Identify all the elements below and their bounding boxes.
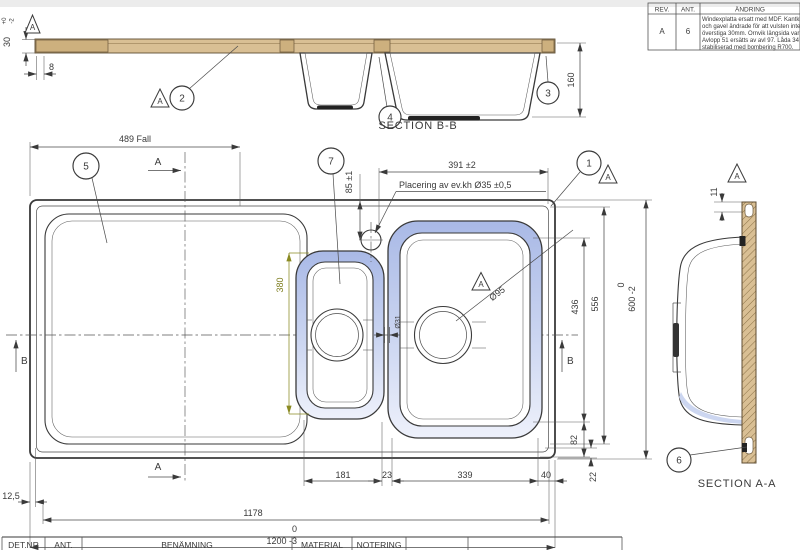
section-aa-label: SECTION A-A xyxy=(698,478,776,490)
svg-text:A: A xyxy=(155,462,162,473)
andring-line-1: Windexplatta ersatt med MDF. Kantklipp, … xyxy=(702,17,800,23)
svg-text:8: 8 xyxy=(49,62,54,72)
dim-339: 339 xyxy=(457,470,472,480)
large-bowl-plan xyxy=(388,221,542,438)
titleblock-benamning: BENÄMNING xyxy=(161,540,212,550)
svg-text:22: 22 xyxy=(588,472,598,482)
svg-text:1: 1 xyxy=(586,159,592,170)
svg-text:5: 5 xyxy=(83,162,89,173)
drawing-canvas: REV. ANT. ÄNDRING A 6 Windexplatta ersat… xyxy=(0,0,800,550)
small-bowl-plan xyxy=(296,251,384,419)
andring-line-5: stabiliserad med bombering R700. xyxy=(702,45,794,51)
titleblock-material: MATERIAL xyxy=(301,540,343,550)
andring-col-header: ÄNDRING xyxy=(735,6,765,14)
dim-23: 23 xyxy=(382,470,392,480)
dim-30-tol-hi: +0 xyxy=(2,17,8,25)
svg-text:3: 3 xyxy=(545,89,551,100)
titleblock-ant: ANT. xyxy=(54,540,72,550)
svg-text:B: B xyxy=(567,356,574,367)
andring-line-2: och gavel ändrade för att vulsten inte s… xyxy=(702,24,800,30)
svg-text:6: 6 xyxy=(676,456,682,467)
rev-cell: A xyxy=(659,27,665,36)
svg-text:82: 82 xyxy=(569,435,579,445)
rev-col-header: REV. xyxy=(655,7,670,14)
svg-text:380: 380 xyxy=(275,277,285,292)
small-bowl-section xyxy=(300,53,372,110)
svg-text:391 ±2: 391 ±2 xyxy=(448,160,475,170)
datum-letter: A xyxy=(157,97,163,106)
large-bowl-section xyxy=(385,53,540,121)
overflow-slot xyxy=(673,323,679,357)
countertop-section xyxy=(35,39,555,53)
svg-text:A: A xyxy=(155,157,162,168)
datum-letter: A xyxy=(605,173,611,182)
titleblock-notering: NOTERING xyxy=(357,540,402,550)
svg-text:489 Fall: 489 Fall xyxy=(119,134,151,144)
drawing-sheet: REV. ANT. ÄNDRING A 6 Windexplatta ersat… xyxy=(0,0,800,550)
svg-text:85 ±1: 85 ±1 xyxy=(344,171,354,193)
datum-letter: A xyxy=(478,280,484,289)
svg-text:12,5: 12,5 xyxy=(2,491,20,501)
bowl-profile-aa xyxy=(673,237,742,425)
svg-text:160: 160 xyxy=(566,72,576,87)
svg-text:436: 436 xyxy=(570,299,580,314)
dim-30-value: 30 xyxy=(2,37,12,47)
svg-text:Placering av ev.kh Ø35 ±0,5: Placering av ev.kh Ø35 ±0,5 xyxy=(399,180,511,190)
datum-letter: A xyxy=(30,23,36,32)
svg-text:2: 2 xyxy=(179,94,185,105)
andring-line-3: överstiga 30mm. Ornvik längsida var 9mm. xyxy=(702,31,800,37)
ant-col-header: ANT. xyxy=(681,7,695,14)
svg-text:556: 556 xyxy=(590,296,600,311)
dim-181: 181 xyxy=(335,470,350,480)
section-bb-label: SECTION B-B xyxy=(378,120,457,132)
dim-30-tol-lo: -2 xyxy=(10,18,16,24)
large-drain-hole xyxy=(415,307,472,364)
back-board-aa xyxy=(740,202,757,463)
svg-text:11: 11 xyxy=(709,187,719,196)
titleblock-detnr: DET.NR xyxy=(8,540,39,550)
svg-text:Ø31: Ø31 xyxy=(395,315,402,328)
svg-text:1178: 1178 xyxy=(243,508,262,518)
small-drain-hole xyxy=(311,309,363,361)
svg-text:B: B xyxy=(21,356,28,367)
dim-1200-tol-hi: 0 xyxy=(292,524,297,534)
datum-letter: A xyxy=(734,172,740,181)
svg-text:0: 0 xyxy=(616,282,626,287)
ant-cell: 6 xyxy=(686,27,691,36)
svg-text:7: 7 xyxy=(328,157,334,168)
dim-40: 40 xyxy=(541,470,551,480)
svg-text:600 -2: 600 -2 xyxy=(627,286,637,312)
andring-line-4: Avlopp 51 ersätts av avl 97. Låda 34 xyxy=(702,37,800,44)
